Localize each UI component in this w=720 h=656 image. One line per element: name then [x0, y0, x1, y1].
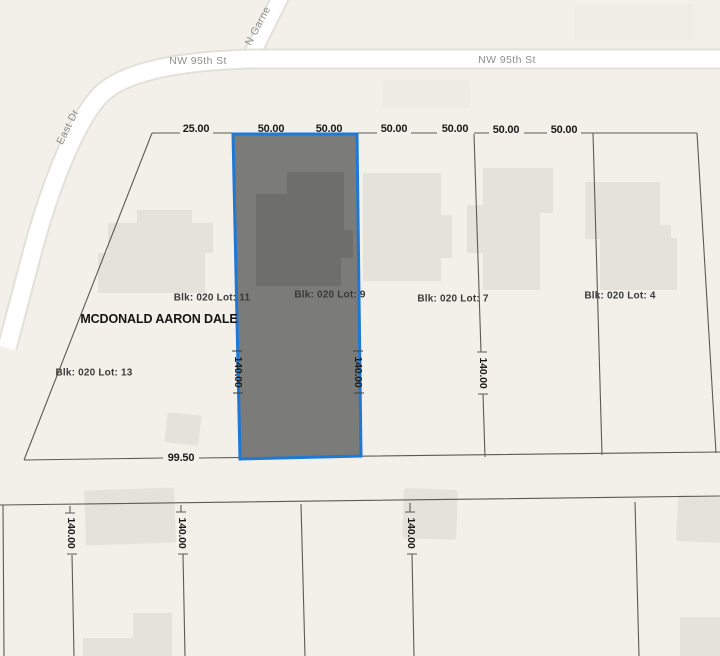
building-lot9-east [363, 173, 452, 281]
dimension-top-5: 50.00 [442, 123, 469, 135]
lot-label-11: Blk: 020 Lot: 11 [174, 293, 251, 304]
dimension-south-depth-3: 140.00 [405, 518, 417, 549]
dimension-top-1: 25.00 [183, 123, 210, 135]
building-lot7 [467, 168, 553, 290]
dimension-top-2: 50.00 [258, 123, 285, 135]
dimension-top-4: 50.00 [381, 123, 408, 135]
building-lot13 [98, 210, 213, 293]
building-south-4 [676, 495, 720, 543]
dimension-top-6: 50.00 [493, 124, 520, 136]
dimension-parcel-left-depth: 140.00 [232, 357, 244, 388]
building-south-5 [680, 617, 720, 656]
faint-building-lot9 [382, 80, 470, 108]
building-south-2a [83, 638, 133, 656]
dimension-lot7-depth: 140.00 [477, 358, 489, 389]
map-canvas[interactable]: NW 95th St NW 95th St N Garne East Dr 25… [0, 0, 720, 656]
buildings-layer [83, 4, 720, 656]
building-south-1 [84, 487, 176, 545]
building-lot4 [585, 182, 677, 290]
lot-label-9: Blk: 020 Lot: 9 [294, 290, 365, 301]
building-shed [165, 412, 202, 445]
lot-label-13: Blk: 020 Lot: 13 [55, 368, 132, 379]
map-layers [0, 0, 720, 656]
street-label-nw-95th-left: NW 95th St [169, 55, 227, 67]
dimension-south-depth-2: 140.00 [176, 518, 188, 549]
dimension-top-3: 50.00 [316, 123, 343, 135]
street-label-nw-95th-right: NW 95th St [478, 54, 536, 66]
dimension-top-7: 50.00 [551, 124, 578, 136]
owner-name-label: MCDONALD AARON DALE [80, 312, 237, 326]
dimension-bottom-width: 99.50 [168, 452, 195, 464]
building-south-2b [133, 613, 172, 656]
lot-label-4: Blk: 020 Lot: 4 [584, 291, 655, 302]
lot-label-7: Blk: 020 Lot: 7 [417, 294, 488, 305]
dimension-parcel-right-depth: 140.00 [352, 357, 364, 388]
faint-building-north [575, 4, 695, 40]
dimension-south-depth-1: 140.00 [65, 518, 77, 549]
